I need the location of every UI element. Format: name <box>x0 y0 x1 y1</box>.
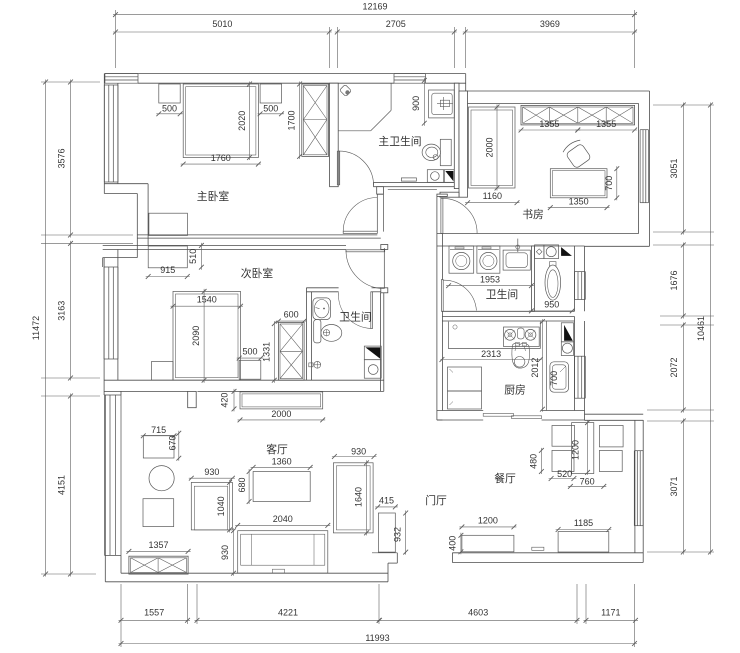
svg-text:次卧室: 次卧室 <box>241 266 274 280</box>
svg-text:主卫生间: 主卫生间 <box>378 134 421 148</box>
svg-text:2072: 2072 <box>669 357 679 377</box>
svg-text:2012: 2012 <box>530 358 540 378</box>
svg-text:3071: 3071 <box>669 476 679 496</box>
svg-text:2090: 2090 <box>191 326 201 346</box>
svg-text:700: 700 <box>604 176 614 191</box>
svg-text:2000: 2000 <box>485 137 495 157</box>
svg-text:500: 500 <box>263 103 278 113</box>
svg-text:1540: 1540 <box>197 295 217 305</box>
svg-text:3051: 3051 <box>669 158 679 178</box>
svg-text:2313: 2313 <box>481 349 501 359</box>
svg-text:门厅: 门厅 <box>425 493 447 507</box>
svg-text:930: 930 <box>220 545 230 560</box>
svg-text:480: 480 <box>529 454 539 469</box>
svg-text:2705: 2705 <box>386 19 406 29</box>
svg-text:600: 600 <box>284 310 299 320</box>
svg-text:10461: 10461 <box>696 316 706 341</box>
svg-text:1557: 1557 <box>144 608 164 618</box>
svg-text:卫生间: 卫生间 <box>486 287 518 301</box>
svg-text:书房: 书房 <box>522 208 544 221</box>
svg-text:930: 930 <box>351 446 366 456</box>
svg-text:1350: 1350 <box>569 197 589 207</box>
svg-text:1355: 1355 <box>539 119 559 129</box>
svg-text:500: 500 <box>162 103 177 113</box>
svg-text:1160: 1160 <box>483 191 502 201</box>
svg-text:4221: 4221 <box>278 608 298 618</box>
svg-text:4603: 4603 <box>468 608 488 618</box>
svg-text:1700: 1700 <box>287 110 297 130</box>
svg-text:卫生间: 卫生间 <box>339 310 371 324</box>
svg-text:915: 915 <box>160 265 175 275</box>
svg-text:12169: 12169 <box>362 2 387 12</box>
svg-text:餐厅: 餐厅 <box>494 471 516 485</box>
svg-text:11472: 11472 <box>31 316 41 340</box>
svg-text:520: 520 <box>557 469 572 479</box>
svg-text:715: 715 <box>151 425 166 435</box>
svg-text:3576: 3576 <box>57 148 67 168</box>
svg-text:1185: 1185 <box>574 518 593 528</box>
svg-text:1676: 1676 <box>669 270 679 290</box>
svg-text:1357: 1357 <box>148 540 168 550</box>
svg-text:932: 932 <box>393 527 403 542</box>
svg-text:1171: 1171 <box>601 608 620 618</box>
svg-text:700: 700 <box>549 371 559 386</box>
svg-text:主卧室: 主卧室 <box>197 189 230 203</box>
svg-text:900: 900 <box>411 96 421 111</box>
svg-text:1331: 1331 <box>262 342 272 362</box>
svg-text:1040: 1040 <box>216 496 226 516</box>
svg-text:3163: 3163 <box>57 301 67 321</box>
svg-text:1355: 1355 <box>596 119 616 129</box>
svg-text:2020: 2020 <box>237 111 247 131</box>
svg-text:1760: 1760 <box>211 153 231 163</box>
svg-text:5010: 5010 <box>212 19 232 29</box>
svg-text:1953: 1953 <box>480 275 500 285</box>
svg-text:510: 510 <box>188 249 198 264</box>
svg-text:500: 500 <box>242 347 257 357</box>
svg-text:670: 670 <box>168 435 178 450</box>
svg-text:1200: 1200 <box>571 440 581 460</box>
svg-text:760: 760 <box>580 477 595 487</box>
svg-text:厨房: 厨房 <box>504 384 526 397</box>
svg-text:415: 415 <box>379 496 394 506</box>
svg-text:11993: 11993 <box>365 633 389 643</box>
svg-text:1360: 1360 <box>272 457 292 467</box>
svg-text:950: 950 <box>544 300 559 310</box>
svg-text:1200: 1200 <box>478 516 498 526</box>
svg-text:680: 680 <box>237 477 247 492</box>
svg-text:3969: 3969 <box>540 19 560 29</box>
svg-text:420: 420 <box>220 393 230 408</box>
svg-text:1640: 1640 <box>354 487 364 507</box>
svg-text:930: 930 <box>204 467 219 477</box>
svg-text:客厅: 客厅 <box>266 442 288 456</box>
svg-text:4151: 4151 <box>57 475 67 495</box>
svg-text:400: 400 <box>448 536 458 551</box>
svg-text:2040: 2040 <box>273 514 293 524</box>
svg-text:2000: 2000 <box>271 409 291 419</box>
